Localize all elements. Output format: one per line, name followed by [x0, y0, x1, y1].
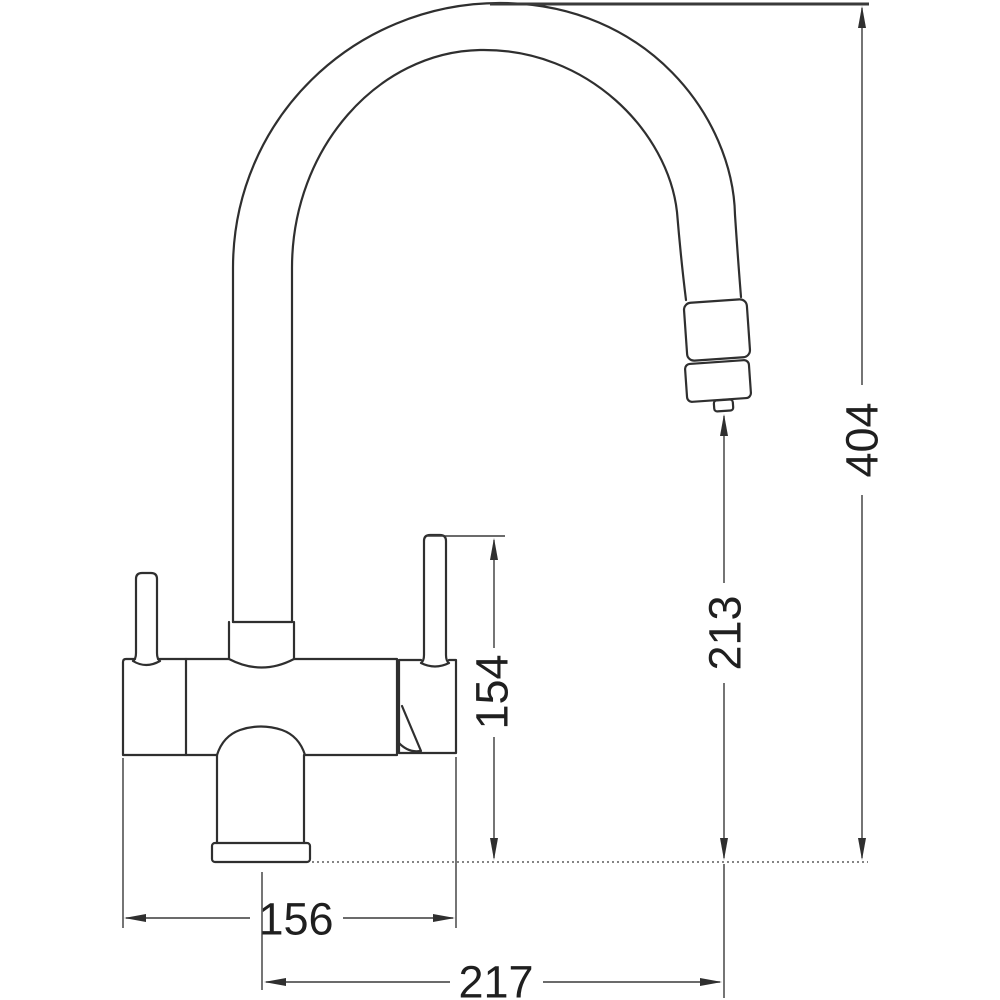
dimension-total-height: 404	[490, 4, 888, 860]
technical-drawing-faucet: 404 213 154 156 217	[0, 0, 1000, 1000]
base-flange	[212, 843, 310, 862]
valve-lever-diagonal	[402, 706, 421, 751]
dimension-base-width: 156	[123, 757, 456, 945]
arrow-left-icon	[124, 914, 146, 922]
arrow-down-icon	[720, 838, 728, 860]
dimension-lever-height: 154	[427, 536, 518, 860]
dim-label-404: 404	[837, 402, 888, 477]
dim-label-156: 156	[258, 894, 333, 945]
nozzle-upper-block	[684, 299, 751, 361]
shank-arch	[217, 727, 305, 756]
arrow-down-icon	[858, 838, 866, 860]
dim-label-217: 217	[458, 957, 533, 1000]
arrow-up-icon	[858, 6, 866, 28]
arrow-up-icon	[490, 538, 498, 560]
dim-label-213: 213	[700, 595, 751, 670]
dim-label-154: 154	[467, 654, 518, 729]
drawing-canvas: 404 213 154 156 217	[0, 0, 1000, 1000]
arrow-right-icon	[700, 978, 722, 986]
shank-sides	[217, 755, 304, 843]
faucet-outline	[123, 3, 751, 862]
nozzle-outlet-nub	[714, 399, 734, 411]
nozzle-lower-block	[685, 360, 751, 402]
right-lever	[421, 535, 449, 667]
arrow-up-icon	[720, 414, 728, 436]
arrow-left-icon	[264, 978, 286, 986]
body-block	[123, 659, 397, 755]
arrow-down-icon	[490, 838, 498, 860]
left-lever	[133, 573, 160, 665]
spout-column	[229, 622, 294, 668]
spout-outer-edge	[233, 3, 741, 622]
dimension-outlet-height: 213	[700, 414, 751, 998]
right-valve-block	[399, 660, 456, 753]
arrow-right-icon	[433, 914, 455, 922]
